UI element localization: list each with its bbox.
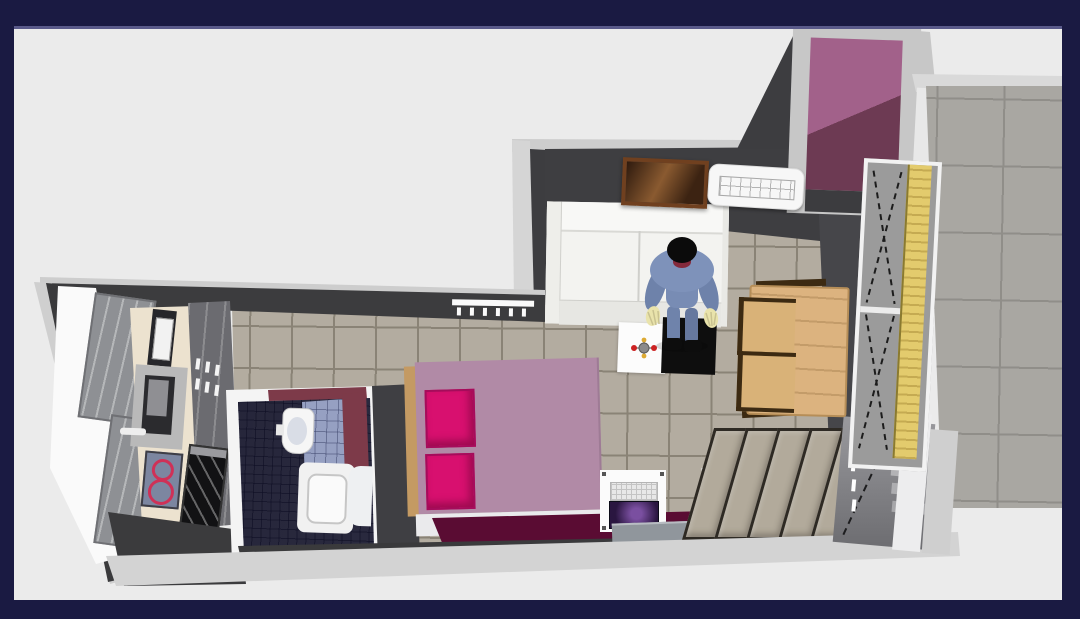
kitchen-cooktop — [141, 450, 184, 509]
living-radiator — [452, 299, 534, 316]
radiator-fin — [496, 308, 500, 316]
radiator-fin — [522, 309, 526, 317]
frame-inner-line — [14, 26, 1062, 29]
radiator-fin — [195, 378, 200, 389]
frame-border-left — [0, 0, 14, 619]
bathroom-fixture-white — [347, 466, 373, 527]
balcony-window — [848, 158, 942, 472]
bed-pillow-2 — [425, 453, 475, 510]
shower-tray — [297, 462, 355, 534]
radiator-fin — [483, 308, 487, 316]
basin-bowl — [287, 417, 308, 446]
appliance-front — [152, 317, 174, 361]
oven-top-bar — [190, 446, 227, 458]
shower-tray-inner — [306, 473, 348, 524]
desk-corner — [602, 472, 606, 476]
sink-faucet — [120, 428, 146, 436]
bed-pillow-1 — [424, 389, 476, 448]
dining-chair-1 — [737, 297, 796, 357]
sink-basin-inner — [146, 379, 168, 416]
desk-corner — [660, 472, 664, 476]
radiator-fin — [470, 308, 474, 316]
kitchen-radiator — [190, 358, 231, 402]
frame-border-top — [0, 0, 1080, 26]
radiator-fin — [205, 361, 210, 372]
desk-corner — [602, 526, 606, 530]
dining-chair-2 — [736, 351, 796, 413]
radiator-bar — [452, 299, 534, 306]
hob-ring-2 — [147, 478, 175, 506]
floor-plan-3d-viewport[interactable] — [0, 0, 1080, 619]
radiator-fin — [215, 365, 220, 376]
kitchen-sink — [130, 364, 188, 449]
air-conditioner — [707, 163, 805, 211]
frame-border-bottom — [0, 600, 1080, 619]
basin-bracket — [276, 424, 284, 435]
person-figure — [640, 226, 724, 354]
radiator-fin — [195, 358, 200, 369]
bed — [404, 355, 609, 538]
radiator-fin — [214, 385, 219, 396]
wall-picture — [621, 157, 709, 209]
laptop-keyboard — [610, 482, 658, 501]
bathroom-basin — [281, 407, 315, 454]
frame-border-right — [1062, 0, 1080, 619]
radiator-fin — [204, 381, 209, 392]
radiator-fin — [457, 307, 461, 315]
ac-vent-grid — [718, 176, 795, 201]
radiator-fin — [509, 308, 513, 316]
